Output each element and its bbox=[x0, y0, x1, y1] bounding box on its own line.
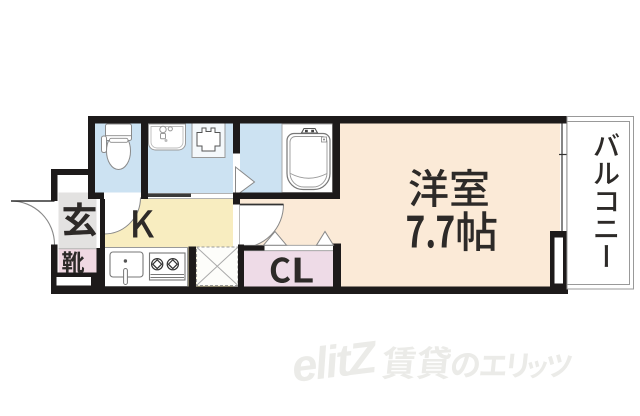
svg-text:elitZ: elitZ bbox=[289, 331, 381, 392]
